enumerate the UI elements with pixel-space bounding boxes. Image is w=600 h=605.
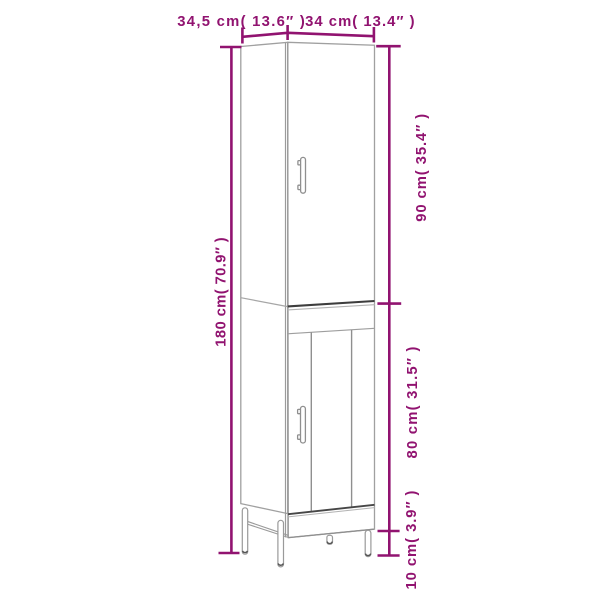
svg-text:34 cm( 13.4″ ): 34 cm( 13.4″ ) bbox=[305, 14, 415, 30]
svg-text:34,5 cm( 13.6″ ): 34,5 cm( 13.6″ ) bbox=[177, 14, 305, 30]
svg-text:90 cm( 35.4″ ): 90 cm( 35.4″ ) bbox=[414, 114, 430, 222]
svg-text:10 cm( 3.9″ ): 10 cm( 3.9″ ) bbox=[404, 490, 420, 589]
svg-text:180 cm( 70.9″ ): 180 cm( 70.9″ ) bbox=[214, 237, 230, 347]
svg-text:80 cm( 31.5″ ): 80 cm( 31.5″ ) bbox=[405, 346, 421, 458]
